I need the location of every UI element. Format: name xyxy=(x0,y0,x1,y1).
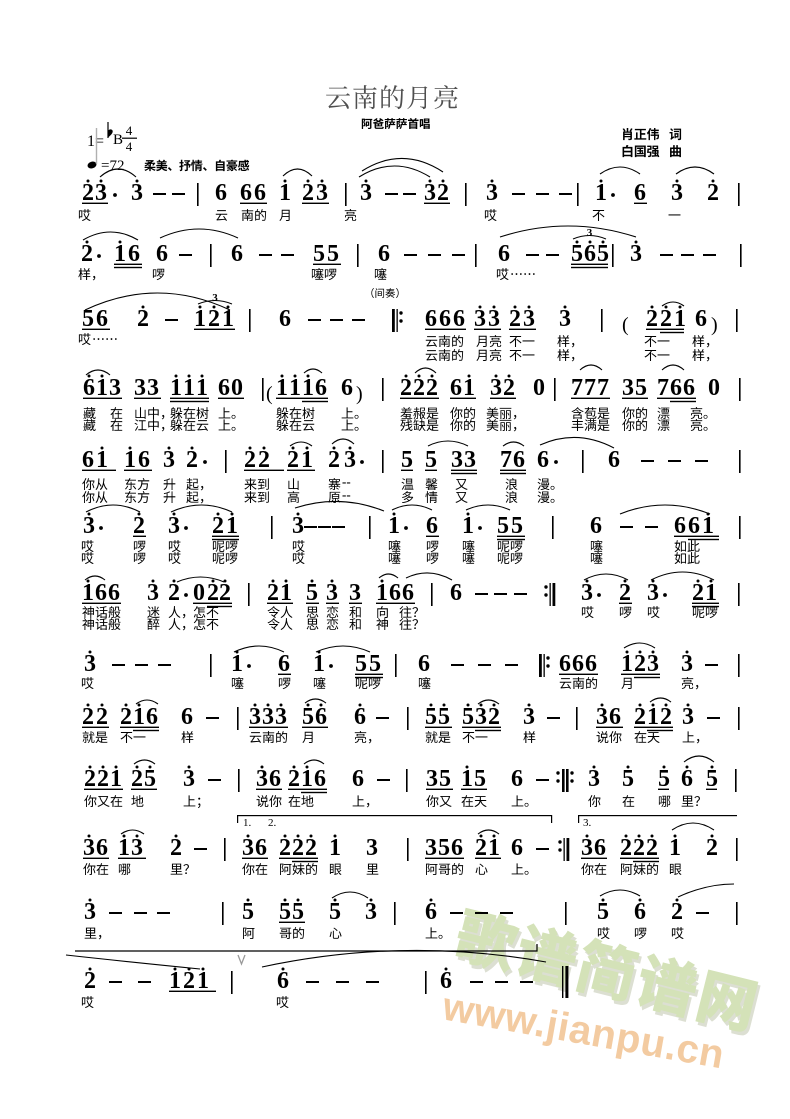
svg-text:5: 5 xyxy=(658,766,670,792)
svg-text:1: 1 xyxy=(376,580,388,606)
svg-text:5: 5 xyxy=(279,899,291,925)
svg-text:5: 5 xyxy=(438,835,450,861)
svg-text:6: 6 xyxy=(315,375,327,401)
svg-text:1: 1 xyxy=(488,835,500,861)
svg-text:2: 2 xyxy=(660,704,672,730)
svg-text:3: 3 xyxy=(163,447,175,473)
svg-text:2: 2 xyxy=(328,447,340,473)
svg-text:(: ( xyxy=(622,314,629,336)
svg-text:3: 3 xyxy=(326,580,338,606)
svg-text:2: 2 xyxy=(131,766,143,792)
svg-text:1: 1 xyxy=(329,835,341,861)
svg-text:5: 5 xyxy=(329,899,341,925)
svg-text:--: -- xyxy=(342,487,351,502)
svg-text:6: 6 xyxy=(425,306,437,332)
svg-text:5: 5 xyxy=(497,513,509,539)
svg-text:2: 2 xyxy=(634,704,646,730)
svg-text:1: 1 xyxy=(194,306,206,332)
svg-text:3: 3 xyxy=(147,580,159,606)
svg-text:3: 3 xyxy=(426,766,438,792)
svg-text:5: 5 xyxy=(292,899,304,925)
svg-text:3: 3 xyxy=(588,766,600,792)
svg-text:1: 1 xyxy=(96,375,108,401)
svg-text:1: 1 xyxy=(313,651,325,677)
svg-text:2: 2 xyxy=(84,968,96,994)
svg-text:6: 6 xyxy=(450,580,462,606)
svg-text:2: 2 xyxy=(97,766,109,792)
svg-text:1: 1 xyxy=(280,580,292,606)
svg-text:2: 2 xyxy=(692,580,704,606)
svg-text:2: 2 xyxy=(660,306,672,332)
svg-text:6: 6 xyxy=(634,899,646,925)
svg-text:2: 2 xyxy=(244,447,256,473)
svg-text:3: 3 xyxy=(344,447,356,473)
svg-text:5: 5 xyxy=(597,899,609,925)
svg-text:1: 1 xyxy=(231,651,243,677)
svg-text:0: 0 xyxy=(708,375,720,401)
svg-text:2: 2 xyxy=(503,375,515,401)
svg-text:6: 6 xyxy=(278,651,290,677)
svg-text:2: 2 xyxy=(82,180,94,206)
svg-text:2: 2 xyxy=(183,968,195,994)
svg-text:6: 6 xyxy=(681,766,693,792)
svg-text:3: 3 xyxy=(316,180,328,206)
svg-text:3: 3 xyxy=(647,651,659,677)
svg-text:2: 2 xyxy=(646,306,658,332)
svg-text:4: 4 xyxy=(126,123,133,138)
svg-text:1: 1 xyxy=(170,375,182,401)
svg-text:2: 2 xyxy=(208,306,220,332)
svg-text:1: 1 xyxy=(197,968,209,994)
svg-text:6: 6 xyxy=(146,704,158,730)
svg-text:3.: 3. xyxy=(583,817,592,829)
svg-text:3: 3 xyxy=(83,835,95,861)
svg-text:1: 1 xyxy=(82,580,94,606)
svg-text:5: 5 xyxy=(425,704,437,730)
svg-text:1: 1 xyxy=(302,375,314,401)
svg-text:3: 3 xyxy=(671,180,683,206)
svg-text:6: 6 xyxy=(352,766,364,792)
svg-text:5: 5 xyxy=(438,704,450,730)
svg-text:2: 2 xyxy=(413,375,425,401)
svg-text:5: 5 xyxy=(401,447,413,473)
svg-text:6: 6 xyxy=(314,766,326,792)
svg-text:5: 5 xyxy=(622,766,634,792)
svg-text:6: 6 xyxy=(254,180,266,206)
svg-text:2: 2 xyxy=(706,835,718,861)
svg-text:6: 6 xyxy=(584,241,596,267)
svg-text:2: 2 xyxy=(84,766,96,792)
svg-text:2: 2 xyxy=(426,375,438,401)
svg-text:3: 3 xyxy=(83,513,95,539)
svg-text:2: 2 xyxy=(475,835,487,861)
svg-text:1: 1 xyxy=(124,447,136,473)
svg-text:1: 1 xyxy=(669,835,681,861)
svg-text:2: 2 xyxy=(288,766,300,792)
svg-text:3: 3 xyxy=(475,704,487,730)
svg-text:3: 3 xyxy=(249,704,261,730)
svg-text:3: 3 xyxy=(109,375,121,401)
svg-text:6: 6 xyxy=(389,580,401,606)
svg-text:6: 6 xyxy=(108,580,120,606)
svg-text:6: 6 xyxy=(218,375,230,401)
svg-text:2: 2 xyxy=(133,513,145,539)
svg-text:1: 1 xyxy=(702,513,714,539)
svg-text:2: 2 xyxy=(120,704,132,730)
svg-text:6: 6 xyxy=(96,306,108,332)
svg-text:6: 6 xyxy=(341,375,353,401)
svg-text:6: 6 xyxy=(453,306,465,332)
svg-text:5: 5 xyxy=(511,513,523,539)
svg-text:2: 2 xyxy=(81,241,93,267)
svg-text:6: 6 xyxy=(279,306,291,332)
svg-text:5: 5 xyxy=(82,306,94,332)
svg-text:3: 3 xyxy=(131,835,143,861)
svg-text:3: 3 xyxy=(360,180,372,206)
svg-text:6: 6 xyxy=(688,513,700,539)
svg-text:3: 3 xyxy=(486,180,498,206)
svg-text:=72: =72 xyxy=(101,158,124,174)
svg-text:1: 1 xyxy=(461,766,473,792)
svg-text:6: 6 xyxy=(269,766,281,792)
svg-text:1: 1 xyxy=(183,375,195,401)
svg-text:6: 6 xyxy=(181,704,193,730)
svg-text:4: 4 xyxy=(126,139,133,154)
svg-text:2: 2 xyxy=(633,835,645,861)
svg-text:1: 1 xyxy=(301,766,313,792)
svg-text:6: 6 xyxy=(426,513,438,539)
svg-text:6: 6 xyxy=(594,835,606,861)
svg-text:6: 6 xyxy=(156,241,168,267)
svg-text:6: 6 xyxy=(418,651,430,677)
svg-text:1: 1 xyxy=(388,513,400,539)
svg-text:6: 6 xyxy=(609,704,621,730)
svg-text:1: 1 xyxy=(462,513,474,539)
svg-text:2: 2 xyxy=(137,306,149,332)
svg-text:3: 3 xyxy=(596,704,608,730)
svg-text:6: 6 xyxy=(95,580,107,606)
svg-text:2: 2 xyxy=(292,835,304,861)
svg-text:6: 6 xyxy=(559,651,571,677)
svg-text:6: 6 xyxy=(96,835,108,861)
svg-text:2: 2 xyxy=(82,704,94,730)
svg-text:2: 2 xyxy=(212,513,224,539)
svg-text:2: 2 xyxy=(207,580,219,606)
svg-text:6: 6 xyxy=(511,835,523,861)
svg-text:1=: 1= xyxy=(87,133,104,150)
svg-text:(: ( xyxy=(266,383,273,405)
svg-text:5: 5 xyxy=(425,447,437,473)
svg-text:3: 3 xyxy=(95,180,107,206)
svg-text:3: 3 xyxy=(424,180,436,206)
svg-text:5: 5 xyxy=(306,580,318,606)
svg-text:6: 6 xyxy=(440,968,452,994)
svg-text:1: 1 xyxy=(114,241,126,267)
svg-text:6: 6 xyxy=(128,241,140,267)
svg-text:3: 3 xyxy=(168,513,180,539)
svg-text:6: 6 xyxy=(231,241,243,267)
svg-text:2: 2 xyxy=(258,447,270,473)
svg-text:6: 6 xyxy=(590,513,602,539)
svg-text:6: 6 xyxy=(215,180,227,206)
svg-text:5: 5 xyxy=(571,241,583,267)
svg-text:1: 1 xyxy=(196,375,208,401)
svg-text:6: 6 xyxy=(498,241,510,267)
svg-text:2.: 2. xyxy=(268,817,277,829)
svg-text:6: 6 xyxy=(402,580,414,606)
svg-text:1: 1 xyxy=(647,704,659,730)
svg-text:3: 3 xyxy=(581,835,593,861)
svg-text:6: 6 xyxy=(511,766,523,792)
svg-text:2: 2 xyxy=(186,447,198,473)
svg-text:2: 2 xyxy=(168,580,180,606)
svg-text:6: 6 xyxy=(450,375,462,401)
svg-text:5: 5 xyxy=(327,241,339,267)
svg-text:1: 1 xyxy=(463,375,475,401)
svg-text:5: 5 xyxy=(242,899,254,925)
svg-text:3: 3 xyxy=(84,651,96,677)
svg-text:2: 2 xyxy=(287,447,299,473)
svg-text:2: 2 xyxy=(96,704,108,730)
svg-text:2: 2 xyxy=(279,835,291,861)
svg-text:5: 5 xyxy=(355,651,367,677)
svg-text:3: 3 xyxy=(366,835,378,861)
svg-text:0: 0 xyxy=(533,375,545,401)
svg-text:3: 3 xyxy=(292,513,304,539)
svg-text:6: 6 xyxy=(354,704,366,730)
svg-text:5: 5 xyxy=(313,241,325,267)
svg-text:3: 3 xyxy=(622,375,634,401)
svg-text:6: 6 xyxy=(277,968,289,994)
svg-text:3: 3 xyxy=(147,375,159,401)
svg-text:3: 3 xyxy=(490,375,502,401)
svg-text:3: 3 xyxy=(474,306,486,332)
svg-text:6: 6 xyxy=(674,513,686,539)
svg-text:6: 6 xyxy=(315,704,327,730)
svg-text:1: 1 xyxy=(279,180,291,206)
svg-text:6: 6 xyxy=(83,375,95,401)
svg-text:6: 6 xyxy=(683,375,695,401)
svg-text:2: 2 xyxy=(671,899,683,925)
svg-text:6: 6 xyxy=(255,835,267,861)
svg-text:6: 6 xyxy=(513,447,525,473)
svg-text:3: 3 xyxy=(587,227,593,239)
svg-text:3: 3 xyxy=(131,180,143,206)
svg-text:6: 6 xyxy=(572,651,584,677)
svg-text:5: 5 xyxy=(474,766,486,792)
svg-text:6: 6 xyxy=(670,375,682,401)
svg-text:2: 2 xyxy=(488,704,500,730)
svg-text:5: 5 xyxy=(462,704,474,730)
svg-text:2: 2 xyxy=(302,180,314,206)
svg-text:3: 3 xyxy=(523,306,535,332)
svg-text:6: 6 xyxy=(537,447,549,473)
svg-text:0: 0 xyxy=(193,580,205,606)
svg-text:2: 2 xyxy=(305,835,317,861)
svg-text:1: 1 xyxy=(595,180,607,206)
svg-text:3: 3 xyxy=(256,766,268,792)
svg-text:3: 3 xyxy=(581,580,593,606)
svg-text:3: 3 xyxy=(134,375,146,401)
svg-text:6: 6 xyxy=(585,651,597,677)
svg-text:3: 3 xyxy=(212,292,218,304)
svg-text:7: 7 xyxy=(584,375,596,401)
svg-text:5: 5 xyxy=(597,241,609,267)
svg-text:6: 6 xyxy=(378,241,390,267)
svg-text:5: 5 xyxy=(144,766,156,792)
svg-text:1: 1 xyxy=(674,306,686,332)
svg-text:0: 0 xyxy=(231,375,243,401)
svg-text:3: 3 xyxy=(523,704,535,730)
svg-text:1: 1 xyxy=(621,651,633,677)
svg-text:3: 3 xyxy=(681,651,693,677)
svg-text:2: 2 xyxy=(219,580,231,606)
svg-text:3: 3 xyxy=(464,447,476,473)
svg-text:1: 1 xyxy=(169,968,181,994)
svg-text:3: 3 xyxy=(630,241,642,267)
svg-text:6: 6 xyxy=(240,180,252,206)
svg-text:2: 2 xyxy=(646,835,658,861)
svg-text:1: 1 xyxy=(705,580,717,606)
svg-text:1: 1 xyxy=(110,766,122,792)
svg-text:1: 1 xyxy=(133,704,145,730)
svg-text:2: 2 xyxy=(267,580,279,606)
svg-text:3: 3 xyxy=(183,766,195,792)
svg-text:7: 7 xyxy=(657,375,669,401)
svg-text:5: 5 xyxy=(706,766,718,792)
svg-text:3: 3 xyxy=(647,580,659,606)
svg-text:6: 6 xyxy=(138,447,150,473)
svg-text:1: 1 xyxy=(96,447,108,473)
svg-text:): ) xyxy=(356,383,363,405)
svg-text:3: 3 xyxy=(425,835,437,861)
svg-text:5: 5 xyxy=(439,766,451,792)
svg-text:1: 1 xyxy=(289,375,301,401)
svg-text:3: 3 xyxy=(349,580,361,606)
svg-text:3: 3 xyxy=(262,704,274,730)
svg-text:2: 2 xyxy=(619,580,631,606)
svg-text:6: 6 xyxy=(425,899,437,925)
svg-text:6: 6 xyxy=(608,447,620,473)
svg-text:6: 6 xyxy=(439,306,451,332)
svg-text:3: 3 xyxy=(488,306,500,332)
svg-text:3: 3 xyxy=(559,306,571,332)
svg-text:1: 1 xyxy=(222,306,234,332)
svg-text:6: 6 xyxy=(82,447,94,473)
svg-text:3: 3 xyxy=(365,899,377,925)
svg-text:6: 6 xyxy=(451,835,463,861)
svg-text:2: 2 xyxy=(707,180,719,206)
svg-text:2: 2 xyxy=(437,180,449,206)
svg-text:1: 1 xyxy=(301,447,313,473)
svg-text:3: 3 xyxy=(682,704,694,730)
svg-text:6: 6 xyxy=(634,180,646,206)
svg-text:3: 3 xyxy=(84,899,96,925)
svg-text:7: 7 xyxy=(597,375,609,401)
svg-text:2: 2 xyxy=(400,375,412,401)
svg-text:B: B xyxy=(113,132,123,148)
svg-text:1.: 1. xyxy=(243,817,252,829)
svg-text:1: 1 xyxy=(226,513,238,539)
svg-text:6: 6 xyxy=(695,306,707,332)
svg-text:5: 5 xyxy=(369,651,381,677)
svg-text:5: 5 xyxy=(302,704,314,730)
svg-text:2: 2 xyxy=(620,835,632,861)
svg-text:7: 7 xyxy=(571,375,583,401)
svg-text:3: 3 xyxy=(242,835,254,861)
svg-text:2: 2 xyxy=(509,306,521,332)
svg-text:2: 2 xyxy=(170,835,182,861)
svg-text:3: 3 xyxy=(451,447,463,473)
svg-text:7: 7 xyxy=(500,447,512,473)
svg-text:5: 5 xyxy=(635,375,647,401)
svg-text:1: 1 xyxy=(118,835,130,861)
svg-text:3: 3 xyxy=(275,704,287,730)
svg-text:): ) xyxy=(711,314,718,336)
svg-text:1: 1 xyxy=(276,375,288,401)
svg-text:2: 2 xyxy=(634,651,646,677)
